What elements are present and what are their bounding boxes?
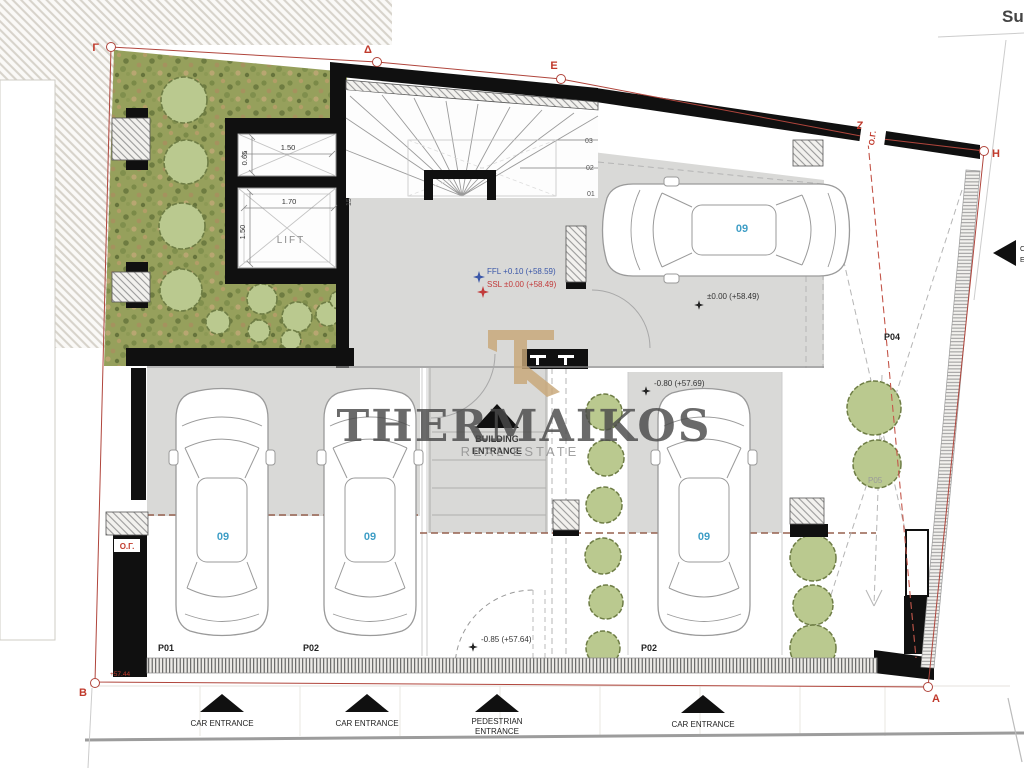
floor-plan: Γ Δ E Z H A B Ο.Γ. Ο.Γ. FFL +0.10 (+58.5… xyxy=(0,0,1024,768)
bush xyxy=(247,284,277,314)
pedestrian-entrance-label-2: ENTRANCE xyxy=(475,727,519,736)
tread-02: 02 xyxy=(586,165,594,172)
neighbor-building xyxy=(0,80,55,640)
tree xyxy=(161,77,207,123)
tread-03: 03 xyxy=(585,138,593,145)
tread-01: 01 xyxy=(587,191,595,198)
car-no-p02: 09 xyxy=(364,531,376,543)
side-entrance-label-2: ENTRANCE xyxy=(1020,257,1024,264)
ffl-level: FFL +0.10 (+58.59) xyxy=(487,267,556,276)
parking-id-p04: P04 xyxy=(884,332,900,342)
side-entrance-label-1: CAR xyxy=(1020,246,1024,253)
tread-15: 15 xyxy=(346,198,353,206)
pedestrian-entrance-label-1: PEDESTRIAN xyxy=(471,717,522,726)
dim-shaft-depth: 0.65 xyxy=(240,151,249,166)
parking-id-p02: P02 xyxy=(303,643,319,653)
ssl-level: SSL ±0.00 (+58.49) xyxy=(487,280,557,289)
marker-gamma: Γ xyxy=(92,42,99,54)
car-p01 xyxy=(169,389,275,636)
car-entrance-label-1: CAR ENTRANCE xyxy=(190,719,253,728)
bush xyxy=(206,310,230,334)
car-no-p01: 09 xyxy=(217,531,229,543)
tree xyxy=(160,269,202,311)
level-parking-top: ±0.00 (+58.49) xyxy=(707,292,760,301)
marker-delta: Δ xyxy=(364,44,372,56)
level-parking-low: -0.85 (+57.64) xyxy=(481,635,532,644)
bush xyxy=(248,320,270,342)
neighbor-hatch-top xyxy=(0,0,392,45)
dim-cab-width: 1.70 xyxy=(282,197,297,206)
bush xyxy=(282,302,312,332)
parking-id-p05: P05 xyxy=(868,476,883,485)
tree xyxy=(164,140,208,184)
marker-b: B xyxy=(79,687,87,699)
dim-cab-depth: 1.50 xyxy=(238,225,247,240)
level-corner-b: +57.44 xyxy=(110,671,130,678)
parking-id-p03: P02 xyxy=(641,643,657,653)
marker-e: E xyxy=(550,60,557,72)
watermark-tagline: REAL ESTATE xyxy=(461,444,580,459)
lift-label: LIFT xyxy=(277,235,306,246)
marker-h: H xyxy=(992,148,1000,160)
dim-shaft-width: 1.50 xyxy=(281,143,296,152)
car-top xyxy=(603,177,850,283)
street-fence-strip xyxy=(147,658,877,673)
corner-street-text: Su xyxy=(1002,7,1024,26)
level-parking-mid: -0.80 (+57.69) xyxy=(654,379,705,388)
car-entrance-label-2: CAR ENTRANCE xyxy=(335,719,398,728)
car-no-top: 09 xyxy=(736,223,748,235)
parking-id-p01: P01 xyxy=(158,643,174,653)
tree xyxy=(159,203,205,249)
og-left-label: Ο.Γ. xyxy=(120,542,135,551)
marker-a: A xyxy=(932,693,940,705)
bush xyxy=(281,330,301,350)
floor-plan-drawing: Γ Δ E Z H A B Ο.Γ. Ο.Γ. FFL +0.10 (+58.5… xyxy=(0,0,1024,768)
car-entrance-label-3: CAR ENTRANCE xyxy=(671,720,734,729)
car-no-p03: 09 xyxy=(698,531,710,543)
